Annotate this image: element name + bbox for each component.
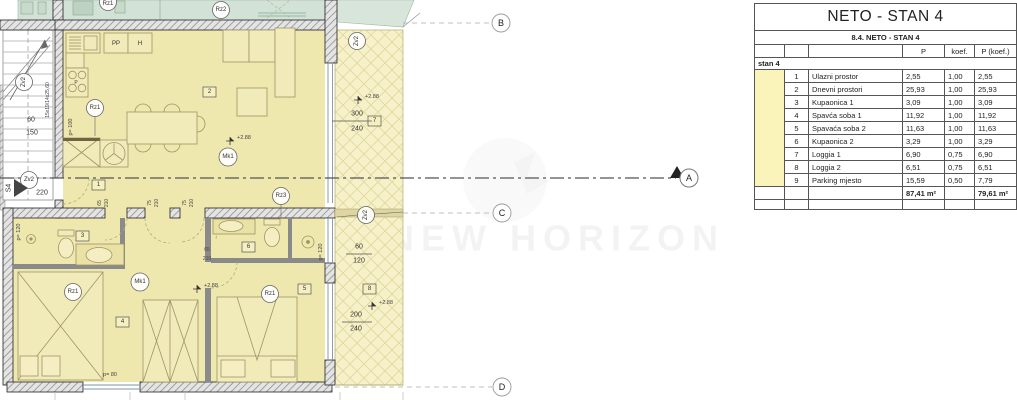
sofa-seat bbox=[249, 30, 275, 62]
row-koef: 1,00 bbox=[945, 135, 975, 148]
window-dim: 120 bbox=[353, 258, 365, 265]
rz2-bubble: Rz2 bbox=[216, 7, 227, 13]
table-row: 4 Spavća soba 1 11,92 1,00 11,92 bbox=[755, 109, 1017, 122]
row-num: 3 bbox=[785, 96, 809, 109]
row-koef: 0,50 bbox=[945, 174, 975, 187]
rz1-bubble: Rz1 bbox=[265, 291, 276, 297]
stair-dim-60: 60 bbox=[27, 117, 35, 124]
row-pkoef: 7,79 bbox=[975, 174, 1017, 187]
loggia1-dim: 300 bbox=[351, 111, 363, 118]
row-p: 2,55 bbox=[903, 70, 945, 83]
p100-label: p= 100 bbox=[68, 119, 74, 136]
row-name: Ulazni prostor bbox=[809, 70, 903, 83]
row-koef: 1,00 bbox=[945, 96, 975, 109]
elevation-value: +2.88 bbox=[365, 94, 379, 100]
row-num: 8 bbox=[785, 161, 809, 174]
row-name: Loggia 2 bbox=[809, 161, 903, 174]
door-dim: 75 bbox=[147, 200, 153, 206]
header-koef: koef. bbox=[945, 45, 975, 58]
mk1-bubble: Mk1 bbox=[222, 154, 234, 160]
row-name: Spavaća soba 2 bbox=[809, 122, 903, 135]
header-blank bbox=[785, 45, 809, 58]
door-dim: 65 bbox=[97, 200, 103, 206]
total-p: 87,41 m² bbox=[903, 187, 945, 200]
row-name: Kupaonica 1 bbox=[809, 96, 903, 109]
watermark-text: NEW HORIZON bbox=[388, 218, 725, 259]
highlight-column bbox=[755, 70, 785, 187]
zv2-bubble: Zv2 bbox=[354, 35, 360, 46]
door-dim: 210 bbox=[154, 199, 160, 208]
table-title: NETO - STAN 4 bbox=[755, 4, 1017, 31]
stair-dim-220: 220 bbox=[36, 190, 48, 197]
door-dim: 210 bbox=[104, 199, 110, 208]
header-pkoef: P (koef.) bbox=[975, 45, 1017, 58]
table-row: 8 Loggia 2 6,51 0,75 6,51 bbox=[755, 161, 1017, 174]
green-terrace bbox=[337, 0, 414, 27]
header-blank bbox=[809, 45, 903, 58]
elevation-value: +2.88 bbox=[379, 300, 393, 306]
door-dim: 75 bbox=[182, 200, 188, 206]
row-pkoef: 11,92 bbox=[975, 109, 1017, 122]
row-p: 11,92 bbox=[903, 109, 945, 122]
table-row: 5 Spavaća soba 2 11,63 1,00 11,63 bbox=[755, 122, 1017, 135]
rz1-bubble: Rz1 bbox=[103, 1, 114, 7]
row-koef: 0,75 bbox=[945, 148, 975, 161]
door-dim: 210 bbox=[203, 256, 212, 262]
table-row: 3 Kupaonica 1 3,09 1,00 3,09 bbox=[755, 96, 1017, 109]
pp-label: PP bbox=[112, 41, 120, 47]
section-label-C: C bbox=[499, 208, 506, 218]
header-blank bbox=[755, 45, 785, 58]
row-koef: 1,00 bbox=[945, 122, 975, 135]
row-p: 11,63 bbox=[903, 122, 945, 135]
s4-label: S4 bbox=[6, 184, 13, 193]
floorplan-page: NEW HORIZON bbox=[0, 0, 1017, 400]
table-row: 2 Dnevni prostori 25,93 1,00 25,93 bbox=[755, 83, 1017, 96]
sofa-seat bbox=[223, 30, 249, 62]
section-label-B: B bbox=[498, 18, 504, 28]
door-dim: 65 bbox=[204, 247, 210, 253]
row-p: 6,51 bbox=[903, 161, 945, 174]
zv2-bubble: Zv2 bbox=[363, 209, 369, 220]
row-name: Kupaonica 2 bbox=[809, 135, 903, 148]
row-num: 2 bbox=[785, 83, 809, 96]
row-num: 4 bbox=[785, 109, 809, 122]
door-dim: 210 bbox=[189, 199, 195, 208]
table-row: 1 Ulazni prostor 2,55 1,00 2,55 bbox=[755, 70, 1017, 83]
dining-table bbox=[127, 112, 197, 144]
table-subtitle: 8.4. NETO - STAN 4 bbox=[755, 31, 1017, 45]
row-name: Parking mjesto bbox=[809, 174, 903, 187]
row-num: 7 bbox=[785, 148, 809, 161]
rz3-bubble: Rz3 bbox=[276, 193, 287, 199]
group-row: stan 4 bbox=[755, 58, 1017, 70]
total-pkoef: 79,61 m² bbox=[975, 187, 1017, 200]
zv2-bubble: Zv2 bbox=[21, 76, 27, 87]
h-label: H bbox=[138, 41, 142, 47]
row-pkoef: 6,90 bbox=[975, 148, 1017, 161]
watermark: NEW HORIZON bbox=[388, 138, 725, 259]
loggia1-dim: 240 bbox=[351, 126, 363, 133]
loggia2-dim: 200 bbox=[350, 312, 362, 319]
row-name: Loggia 1 bbox=[809, 148, 903, 161]
row-p: 3,29 bbox=[903, 135, 945, 148]
window-dim: 60 bbox=[355, 244, 363, 251]
row-p: 6,90 bbox=[903, 148, 945, 161]
section-label-D: D bbox=[499, 382, 506, 392]
row-pkoef: 3,29 bbox=[975, 135, 1017, 148]
bedroom5-furniture bbox=[217, 297, 297, 382]
row-p: 25,93 bbox=[903, 83, 945, 96]
row-pkoef: 2,55 bbox=[975, 70, 1017, 83]
row-koef: 1,00 bbox=[945, 109, 975, 122]
p120-label: p= 120 bbox=[318, 244, 324, 261]
row-pkoef: 3,09 bbox=[975, 96, 1017, 109]
empty-row bbox=[755, 200, 1017, 210]
row-pkoef: 11,63 bbox=[975, 122, 1017, 135]
wardrobe bbox=[143, 300, 198, 382]
elevation-value: +2.88 bbox=[204, 283, 218, 289]
loggia2-dim: 240 bbox=[350, 326, 362, 333]
table-row: 9 Parking mjesto 15,59 0,50 7,79 bbox=[755, 174, 1017, 187]
rz1-bubble: Rz1 bbox=[68, 289, 79, 295]
row-num: 6 bbox=[785, 135, 809, 148]
row-name: Dnevni prostori bbox=[809, 83, 903, 96]
stair-steps-label: 15x19/14x25,60 bbox=[45, 82, 51, 118]
row-name: Spavća soba 1 bbox=[809, 109, 903, 122]
row-num: 1 bbox=[785, 70, 809, 83]
sofa-chaise bbox=[275, 28, 295, 97]
row-p: 3,09 bbox=[903, 96, 945, 109]
zv2-bubble: Zv2 bbox=[24, 177, 35, 183]
row-num: 5 bbox=[785, 122, 809, 135]
table-row: 6 Kupaonica 2 3,29 1,00 3,29 bbox=[755, 135, 1017, 148]
stair-dim-150: 150 bbox=[26, 130, 38, 137]
row-koef: 1,00 bbox=[945, 83, 975, 96]
row-num: 9 bbox=[785, 174, 809, 187]
elevation-value: +2.88 bbox=[237, 135, 251, 141]
rz1-bubble: Rz1 bbox=[90, 105, 101, 111]
area-table: NETO - STAN 4 8.4. NETO - STAN 4 P koef.… bbox=[754, 3, 1016, 210]
row-pkoef: 6,51 bbox=[975, 161, 1017, 174]
row-koef: 1,00 bbox=[945, 70, 975, 83]
mk1-bubble: Mk1 bbox=[134, 279, 146, 285]
row-pkoef: 25,93 bbox=[975, 83, 1017, 96]
total-row: 87,41 m² 79,61 m² bbox=[755, 187, 1017, 200]
p80-label: p= 80 bbox=[103, 372, 117, 378]
row-p: 15,59 bbox=[903, 174, 945, 187]
header-p: P bbox=[903, 45, 945, 58]
coffee-table bbox=[237, 88, 267, 116]
table-row: 7 Loggia 1 6,90 0,75 6,90 bbox=[755, 148, 1017, 161]
p120-label: p= 120 bbox=[16, 224, 22, 241]
section-label-A: A bbox=[686, 173, 692, 183]
dimension-ticks bbox=[55, 392, 403, 400]
row-koef: 0,75 bbox=[945, 161, 975, 174]
